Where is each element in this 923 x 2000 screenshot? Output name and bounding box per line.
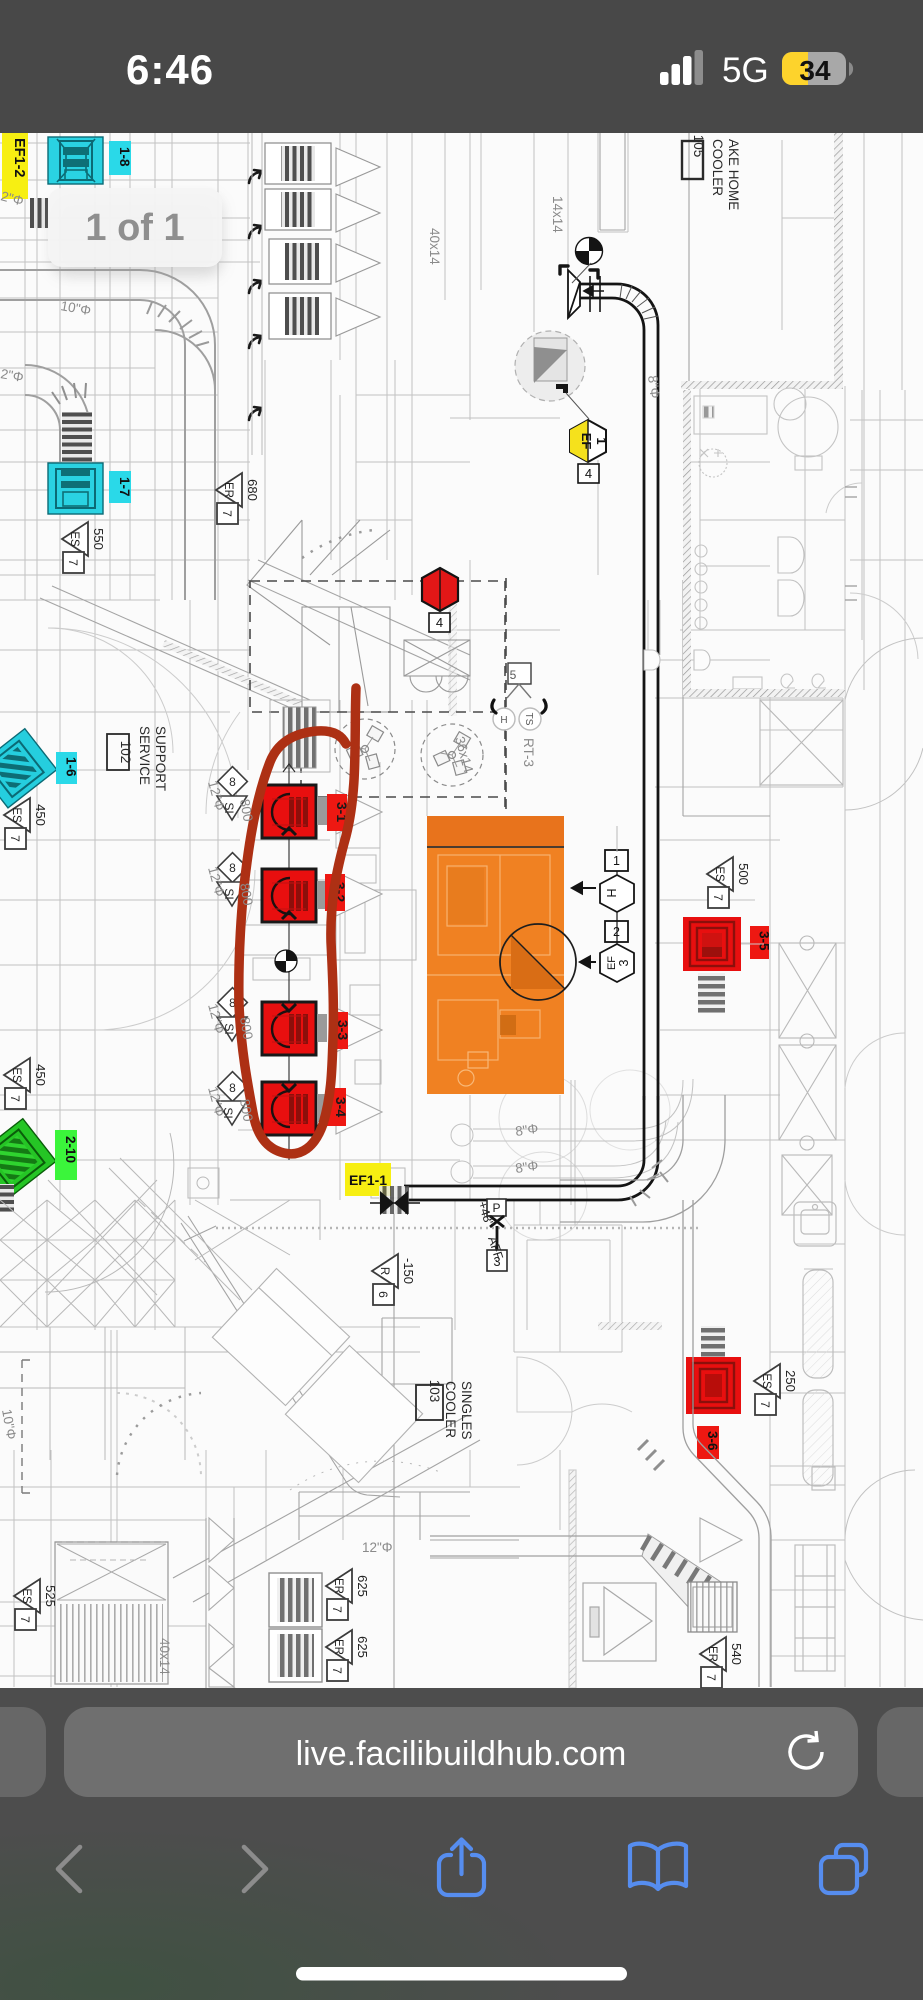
svg-text:3: 3 [617, 959, 631, 966]
svg-text:7: 7 [704, 1674, 718, 1681]
svg-text:8: 8 [229, 1081, 236, 1095]
svg-text:550: 550 [91, 528, 106, 550]
svg-text:625: 625 [355, 1636, 370, 1658]
svg-text:COOLER: COOLER [443, 1381, 458, 1438]
svg-text:ES: ES [10, 807, 22, 823]
svg-text:AKE HOME: AKE HOME [726, 139, 741, 210]
svg-text:8: 8 [229, 861, 236, 875]
svg-text:8: 8 [229, 775, 236, 789]
svg-text:7: 7 [758, 1401, 772, 1408]
svg-text:12"Φ: 12"Φ [362, 1540, 393, 1555]
svg-text:ES: ES [713, 866, 725, 882]
svg-text:ES: ES [68, 531, 80, 547]
svg-text:6:46: 6:46 [126, 46, 214, 93]
svg-text:40x14: 40x14 [157, 1638, 172, 1675]
svg-text:4: 4 [585, 466, 592, 481]
svg-text:1: 1 [613, 854, 620, 868]
svg-text:3-4: 3-4 [333, 1097, 349, 1117]
svg-text:7: 7 [18, 1616, 32, 1623]
svg-text:7: 7 [8, 835, 22, 842]
svg-text:103: 103 [427, 1380, 442, 1403]
svg-text:4: 4 [436, 615, 443, 630]
svg-text:EF1-1: EF1-1 [349, 1172, 387, 1188]
svg-text:SUPPORT: SUPPORT [153, 726, 168, 791]
svg-text:7: 7 [66, 559, 80, 566]
svg-text:EF: EF [579, 433, 594, 450]
svg-text:8"Φ: 8"Φ [514, 1121, 539, 1139]
svg-text:ER: ER [332, 1639, 344, 1655]
svg-text:1 of 1: 1 of 1 [85, 207, 184, 249]
svg-text:5: 5 [510, 668, 517, 682]
svg-text:8"Φ: 8"Φ [514, 1158, 539, 1176]
svg-text:450: 450 [33, 1064, 48, 1086]
svg-text:2-10: 2-10 [63, 1136, 78, 1163]
svg-text:7: 7 [711, 894, 725, 901]
svg-text:ES: ES [20, 1588, 32, 1604]
svg-text:-150: -150 [401, 1258, 416, 1284]
svg-text:500: 500 [736, 863, 751, 885]
svg-text:live.facilibuildhub.com: live.facilibuildhub.com [296, 1735, 627, 1773]
svg-text:34: 34 [799, 55, 831, 86]
svg-text:3-6: 3-6 [705, 1431, 720, 1451]
svg-text:RT-3: RT-3 [521, 738, 536, 767]
svg-text:105: 105 [691, 135, 706, 158]
svg-text:7: 7 [8, 1095, 22, 1102]
svg-text:COOLER: COOLER [710, 139, 725, 196]
svg-text:1-7: 1-7 [117, 477, 132, 497]
svg-text:1-6: 1-6 [64, 757, 79, 777]
svg-text:TS: TS [523, 713, 534, 726]
svg-text:H: H [605, 888, 619, 897]
svg-text:250: 250 [783, 1370, 798, 1392]
svg-text:625: 625 [355, 1575, 370, 1597]
svg-text:3-5: 3-5 [757, 931, 772, 951]
svg-text:680: 680 [245, 479, 260, 501]
svg-text:ES: ES [10, 1067, 22, 1083]
svg-text:6: 6 [376, 1291, 390, 1298]
svg-text:8"Φ: 8"Φ [645, 375, 663, 400]
svg-text:1-8: 1-8 [117, 147, 132, 167]
svg-text:102: 102 [118, 741, 133, 764]
svg-text:ER: ER [332, 1578, 344, 1594]
svg-text:H: H [500, 715, 507, 726]
svg-text:7: 7 [330, 1667, 344, 1674]
svg-text:7: 7 [330, 1606, 344, 1613]
svg-text:14x14: 14x14 [550, 196, 565, 233]
svg-text:ER: ER [706, 1646, 718, 1662]
svg-text:R: R [378, 1267, 390, 1275]
svg-text:450: 450 [33, 804, 48, 826]
svg-text:ES: ES [760, 1373, 772, 1389]
svg-text:525: 525 [43, 1585, 58, 1607]
svg-text:ER: ER [222, 482, 234, 498]
svg-text:EF1-2: EF1-2 [11, 138, 27, 178]
svg-text:7: 7 [220, 510, 234, 517]
svg-text:40x14: 40x14 [427, 228, 442, 265]
svg-text:1: 1 [594, 437, 609, 444]
svg-text:5G: 5G [722, 51, 769, 90]
svg-text:SINGLES: SINGLES [459, 1381, 474, 1440]
svg-text:540: 540 [729, 1643, 744, 1665]
svg-text:SERVICE: SERVICE [137, 726, 152, 785]
